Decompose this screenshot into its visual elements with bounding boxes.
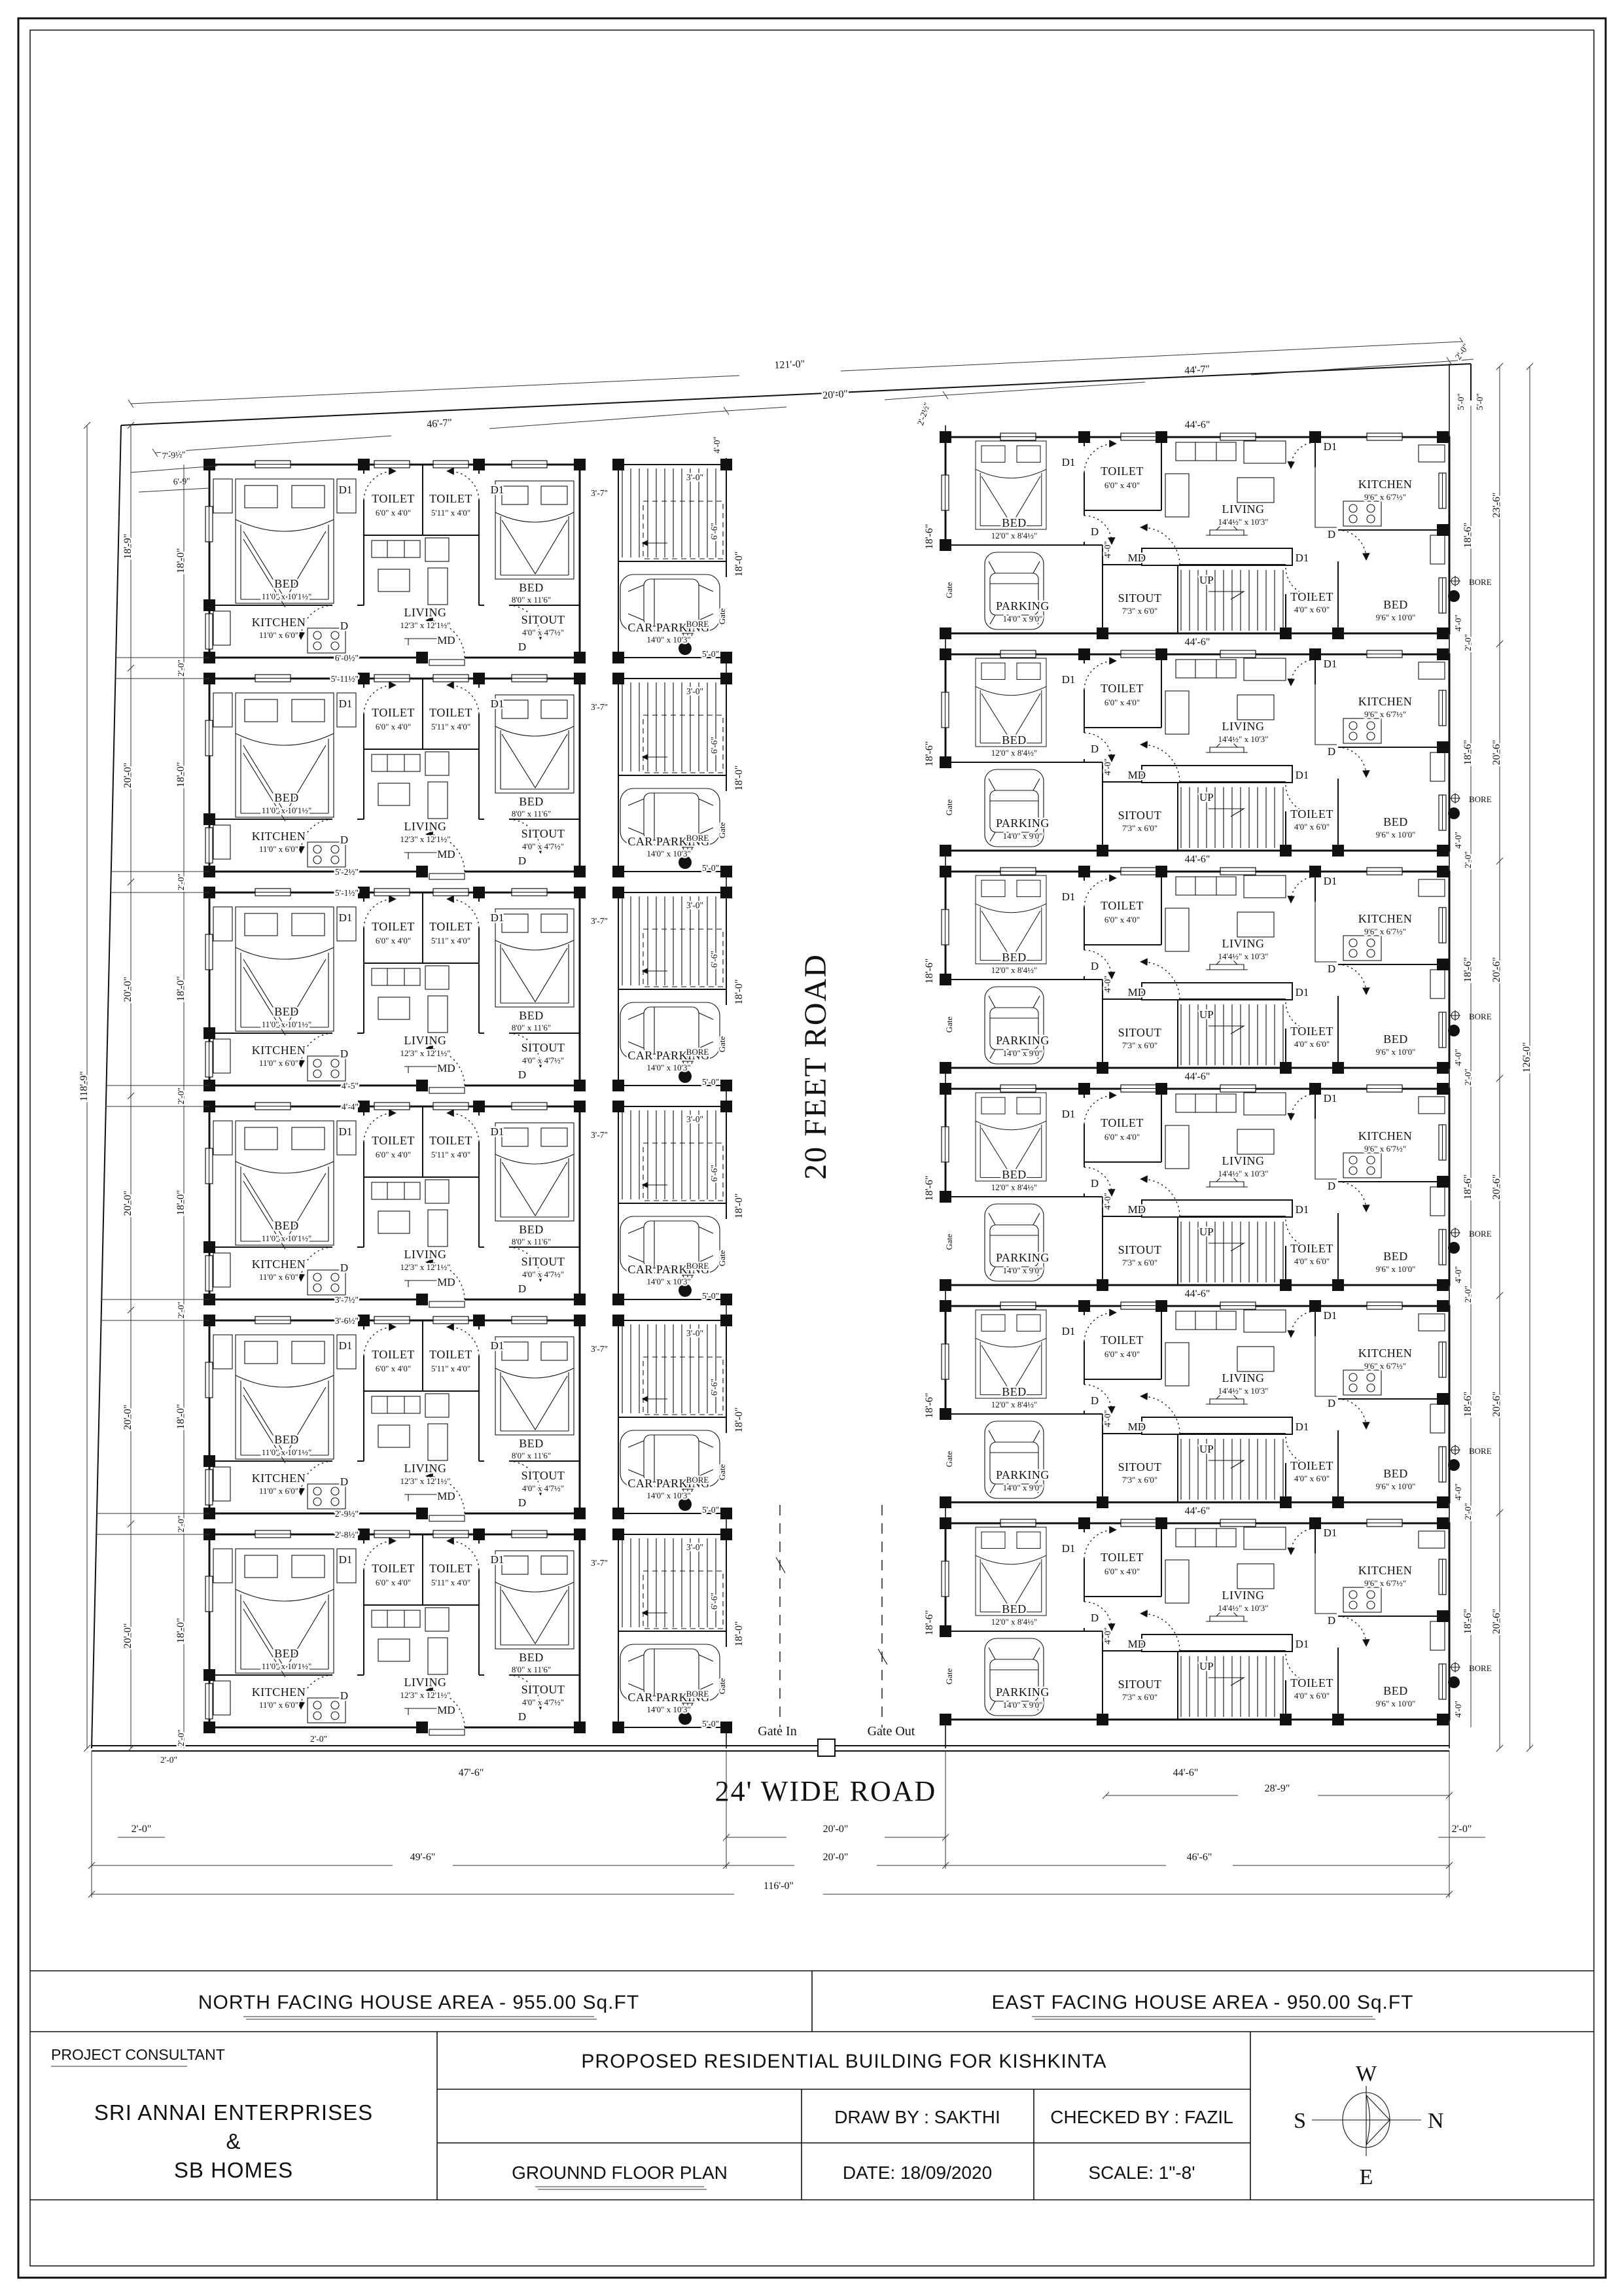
dim-right-setback-a: 5'-0" [1456, 393, 1466, 410]
dim-slant: 5'-1½" [335, 888, 359, 898]
east-area-label: EAST FACING HOUSE AREA - 950.00 Sq.FT [992, 1992, 1414, 2013]
consultant-name-1: SRI ANNAI ENTERPRISES [94, 2100, 373, 2125]
dim-entry: 4'-0" [712, 436, 722, 453]
drawn-by: DRAW BY : SAKTHI [834, 2107, 1000, 2127]
gate-out-label: Gate Out [868, 1724, 915, 1739]
dim-right-unit-h: 18'-6" [1462, 1609, 1474, 1634]
dim-bottom-r1-right: 2'-0" [1452, 1824, 1472, 1835]
dim-bottom-r2-left: 49'-6" [410, 1852, 436, 1863]
dim-right-unit-h: 18'-6" [1462, 523, 1474, 548]
compass-n: N [1428, 2109, 1444, 2133]
center-road-label: 20 FEET ROAD [798, 953, 833, 1180]
dim-corner-left: 2'-0" [160, 1755, 177, 1765]
dim-left-unit-h: 18'-0" [175, 976, 186, 1002]
dim-left-unit-h: 18'-0" [175, 1190, 186, 1216]
gate-in-label: Gate In [758, 1724, 796, 1739]
dim-slant: 3'-6½" [335, 1316, 359, 1326]
dim-center-road-top: 20'-0" [822, 389, 849, 402]
dim-left-col1: 20'-0" [122, 1191, 133, 1216]
dim-left-b: 6'-9" [173, 476, 190, 486]
consultant-label: PROJECT CONSULTANT [51, 2046, 225, 2063]
dim-slant: 5'-11½" [331, 674, 359, 684]
dim-right-gap: 2'-0" [1463, 1069, 1473, 1086]
dim-right-gap: 2'-0" [1463, 1286, 1473, 1303]
dim-right-block-bottom: 44'-6" [1173, 1767, 1199, 1778]
dim-right-unit-h: 18'-6" [1462, 740, 1474, 766]
dim-bottom-r1-left: 2'-0" [132, 1824, 152, 1835]
dim-slant: 5'-2½" [335, 867, 359, 877]
site-boundary [92, 364, 1471, 1751]
dim-right-total: 126'-0" [1521, 1042, 1532, 1073]
area-banner-row: NORTH FACING HOUSE AREA - 955.00 Sq.FT E… [30, 1971, 1594, 2032]
scale-label: SCALE: 1"-8' [1088, 2163, 1195, 2183]
bottom-dimensions: 2'-0" 20'-0" 2'-0" 49'-6" 20'-0" 46'-6" … [88, 1751, 1485, 1898]
dim-bottom-r2-mid: 20'-0" [823, 1852, 849, 1863]
dim-left-col1: 18'-9" [122, 534, 133, 559]
dim-right-gap: 2'-0" [1463, 634, 1473, 651]
dim-left-unit-h: 18'-0" [175, 548, 186, 574]
dim-left-col1: 20'-0" [122, 763, 133, 788]
date-label: DATE: 18/09/2020 [843, 2163, 992, 2183]
north-area-label: NORTH FACING HOUSE AREA - 955.00 Sq.FT [198, 1992, 639, 2013]
dim-left-block-top: 46'-7" [427, 417, 453, 431]
dim-left-col1: 20'-0" [122, 1623, 133, 1649]
dim-left-block-bottom: 47'-6" [459, 1767, 484, 1778]
dim-right-unit-h: 18'-6" [1462, 1392, 1474, 1417]
dim-right-col1: 20'-6" [1491, 740, 1502, 766]
dim-left-unit-h: 18'-0" [175, 1618, 186, 1644]
dim-right-col1: 23'-6" [1491, 493, 1502, 518]
dim-bottom-r2-right: 46'-6" [1187, 1852, 1212, 1863]
dim-slant: 3'-7½" [335, 1295, 359, 1305]
dim-corner: 2'-0" [1453, 342, 1471, 361]
gate-area [776, 1505, 887, 1756]
left-dimensions: 118'-9" 18'-9" 20'-0" 20'-0" 20'-0" 20'-… [79, 422, 359, 1765]
right-dimensions: 126'-0" 23'-6" 20'-6" 20'-6" 20'-6" 20'-… [1462, 363, 1533, 1752]
dim-left-unit-h: 18'-0" [175, 1404, 186, 1430]
dim-right-col1: 20'-6" [1491, 1174, 1502, 1200]
dim-left-total: 118'-9" [79, 1071, 90, 1101]
bottom-road-label: 24' WIDE ROAD [715, 1775, 937, 1807]
project-title: PROPOSED RESIDENTIAL BUILDING FOR KISHKI… [581, 2051, 1106, 2072]
dim-left-gap: 2'-0" [176, 1729, 186, 1746]
dim-left-col1: 20'-0" [122, 977, 133, 1002]
dim-right-gap: 2'-0" [1463, 1503, 1473, 1520]
dim-slant-bottom: 2'-0" [310, 1734, 327, 1744]
dim-slant: 2'-8½" [335, 1530, 359, 1540]
dim-left-col1: 20'-0" [122, 1405, 133, 1430]
dim-left-gap: 2'-0" [176, 660, 186, 677]
dim-left-gap: 2'-0" [176, 1301, 186, 1318]
dim-right-gap: 2'-0" [1463, 851, 1473, 868]
dim-right-col1: 20'-6" [1491, 957, 1502, 983]
floor-plan-drawing: BED 11'0" x 10'1½" TOILET 6'0" x 4'0" TO… [0, 0, 1624, 2296]
compass-rose-icon: W N S E [1294, 2062, 1443, 2189]
dim-right-col1: 20'-6" [1491, 1392, 1502, 1417]
dim-bottom-total: 116'-0" [764, 1881, 794, 1892]
dim-slant: 4'-4" [342, 1102, 359, 1112]
consultant-name-2: SB HOMES [174, 2158, 293, 2182]
top-dimensions: 121'-0" 46'-7" 20'-0" 44'-7" 2'-0" 7'-9½… [128, 338, 1485, 492]
title-block: PROJECT CONSULTANT SRI ANNAI ENTERPRISES… [30, 2032, 1594, 2200]
dim-right-setback-b: 5'-0" [1475, 393, 1485, 410]
dim-left-unit-h: 18'-0" [175, 762, 186, 788]
dim-bottom-r1-mid: 20'-0" [823, 1824, 849, 1835]
dim-slant: 2'-9½" [335, 1509, 359, 1519]
gate-icon [818, 1739, 835, 1756]
dim-slant: 4'-5" [342, 1081, 359, 1091]
dim-overall-top: 121'-0" [774, 359, 805, 371]
dim-left-gap: 2'-0" [176, 1087, 186, 1104]
compass-w: W [1356, 2062, 1377, 2086]
dim-right-col1: 20'-6" [1491, 1609, 1502, 1634]
dim-right-unit-h: 18'-6" [1462, 957, 1474, 983]
compass-s: S [1294, 2109, 1306, 2133]
dim-left-a: 7'-9½" [162, 450, 186, 461]
dim-right-slant: 2'-2½" [915, 401, 932, 427]
checked-by: CHECKED BY : FAZIL [1050, 2107, 1233, 2127]
dim-left-gap: 2'-0" [176, 874, 186, 891]
dim-right-sub-bottom: 28'-9" [1265, 1783, 1290, 1794]
dim-right-unit-h: 18'-6" [1462, 1174, 1474, 1200]
drawing-name: GROUNND FLOOR PLAN [512, 2163, 728, 2183]
dim-left-gap: 2'-0" [176, 1515, 186, 1532]
consultant-amp: & [226, 2129, 241, 2153]
drawing-sheet: BED 11'0" x 10'1½" TOILET 6'0" x 4'0" TO… [0, 0, 1624, 2296]
dim-slant: 6'-0½" [335, 653, 359, 663]
compass-e: E [1360, 2165, 1373, 2189]
dim-right-block-top: 44'-7" [1184, 364, 1210, 377]
